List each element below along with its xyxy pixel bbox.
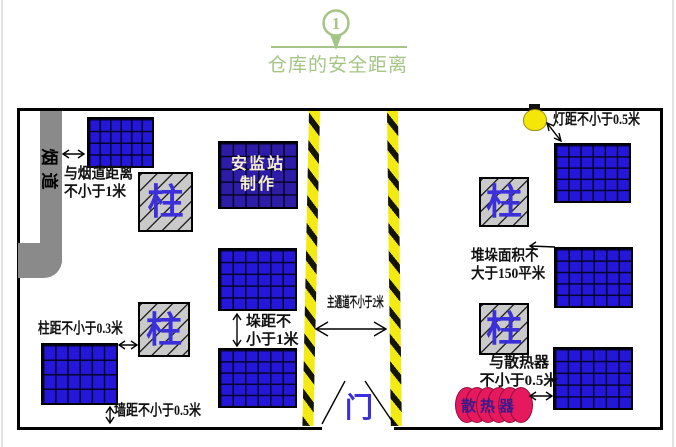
goods-stack: [87, 117, 154, 168]
pillar-label: 柱: [486, 184, 522, 220]
page-title: 仓库的安全距离: [0, 50, 676, 77]
pillar: 柱: [479, 303, 529, 355]
pillar: 柱: [138, 302, 190, 357]
flue-distance-label: 与烟道距离 不小于1米: [64, 166, 133, 201]
pillar-label: 柱: [147, 184, 183, 220]
goods-stack: [553, 347, 633, 410]
step-number: 1: [332, 14, 341, 33]
goods-stack: [554, 143, 631, 203]
pillar: 柱: [479, 177, 529, 227]
stack-area-label: 堆垛面积不 大于150平米: [471, 248, 545, 283]
radiator-distance-label: 与散热器 不小于0.5米: [479, 355, 559, 390]
pillar-label: 柱: [146, 312, 182, 348]
infographic-page: 1 仓库的安全距离 烟道 安监站 制作 柱 柱 柱 柱 散热器 与烟道: [0, 0, 676, 447]
goods-stack: [218, 248, 297, 311]
goods-stack: [41, 343, 118, 405]
stack-gap-label: 垛距不 小于1米: [246, 314, 299, 349]
goods-stack-maker: 安监站 制作: [218, 141, 298, 209]
main-aisle-label: 主通道不小于2米: [327, 295, 384, 313]
radiator-label: 散热器: [461, 395, 518, 416]
flue-duct-elbow: [18, 243, 62, 278]
wall-distance-label: 墙距不小于0.5米: [114, 403, 201, 421]
lamp-bulb-icon: [523, 109, 547, 131]
pillar-distance-label: 柱距不小于0.3米: [38, 321, 123, 339]
goods-stack: [554, 247, 633, 308]
lamp-distance-label: 灯距不小于0.5米: [553, 112, 640, 130]
door-opening: [322, 425, 394, 433]
maker-label-line2: 制作: [231, 175, 285, 195]
flue-label: 烟道: [39, 145, 64, 201]
pillar: 柱: [138, 172, 193, 232]
pillar-label: 柱: [486, 311, 522, 347]
step-pin-icon: 1: [318, 4, 358, 54]
door-label: 门: [345, 386, 373, 426]
maker-label-line1: 安监站: [231, 155, 285, 175]
goods-stack: [218, 348, 297, 408]
